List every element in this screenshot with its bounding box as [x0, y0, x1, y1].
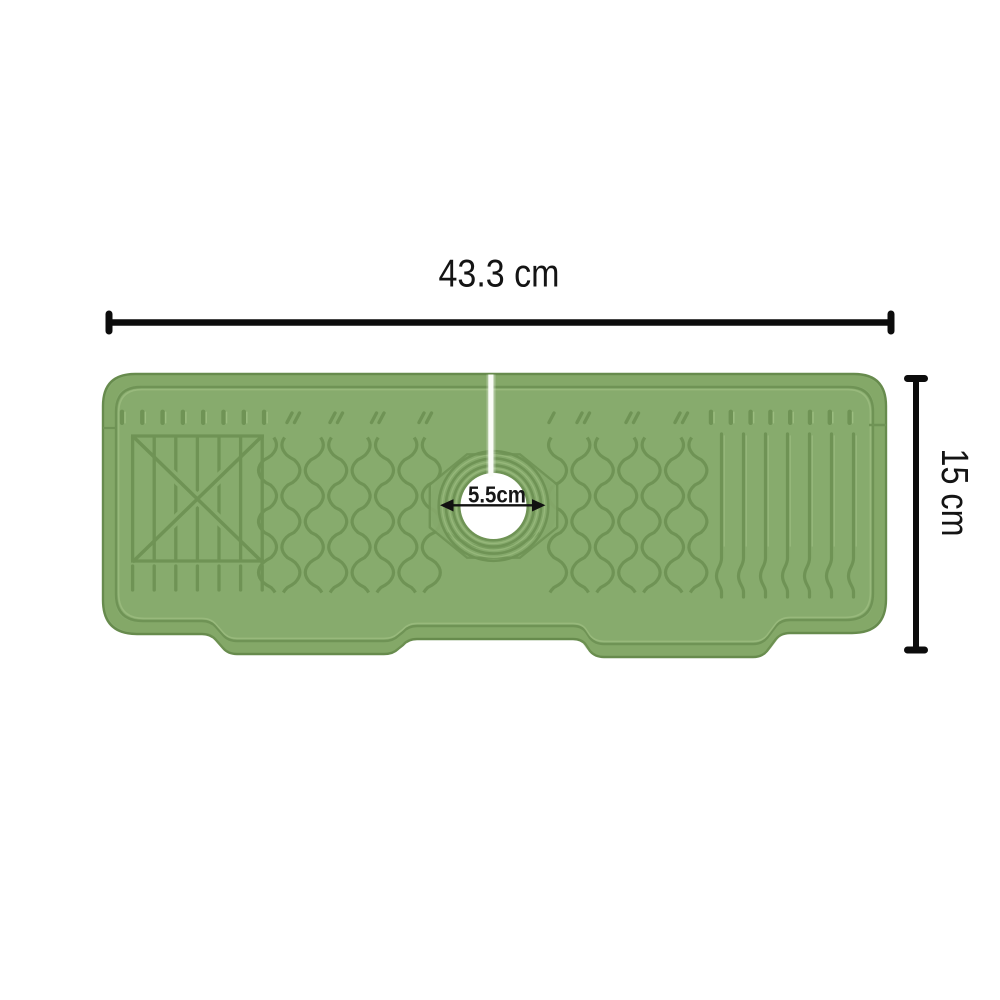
svg-text:5.5cm: 5.5cm: [468, 482, 526, 508]
svg-text:43.3 cm: 43.3 cm: [439, 253, 560, 296]
svg-text:15 cm: 15 cm: [933, 449, 975, 537]
